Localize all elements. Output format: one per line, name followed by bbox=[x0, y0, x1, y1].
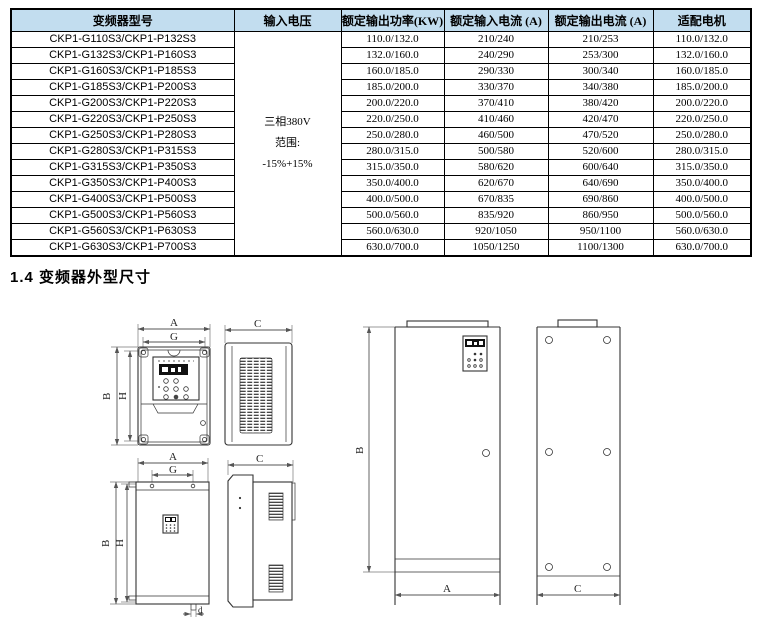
motor-cell: 560.0/630.0 bbox=[653, 224, 751, 240]
header-input-current: 额定输入电流 (A) bbox=[444, 9, 548, 32]
small-inverter-front-view: A G B H bbox=[101, 317, 210, 445]
table-row: CKP1-G400S3/CKP1-P500S3400.0/500.0670/83… bbox=[11, 192, 751, 208]
motor-cell: 630.0/700.0 bbox=[653, 240, 751, 257]
output-current-cell: 520/600 bbox=[548, 144, 653, 160]
dim-label-B: B bbox=[100, 540, 112, 547]
motor-cell: 185.0/200.0 bbox=[653, 80, 751, 96]
output-power-cell: 200.0/220.0 bbox=[341, 96, 444, 112]
model-cell: CKP1-G132S3/CKP1-P160S3 bbox=[11, 48, 234, 64]
dim-label-B: B bbox=[354, 447, 366, 454]
dim-label-C: C bbox=[574, 583, 581, 595]
model-cell: CKP1-G350S3/CKP1-P400S3 bbox=[11, 176, 234, 192]
dim-label-G: G bbox=[169, 464, 177, 476]
input-voltage-cell: 三相380V范围:-15%+15% bbox=[234, 32, 341, 257]
input-current-cell: 240/290 bbox=[444, 48, 548, 64]
model-cell: CKP1-G280S3/CKP1-P315S3 bbox=[11, 144, 234, 160]
motor-cell: 315.0/350.0 bbox=[653, 160, 751, 176]
model-cell: CKP1-G315S3/CKP1-P350S3 bbox=[11, 160, 234, 176]
table-row: CKP1-G132S3/CKP1-P160S3132.0/160.0240/29… bbox=[11, 48, 751, 64]
output-current-cell: 253/300 bbox=[548, 48, 653, 64]
model-cell: CKP1-G250S3/CKP1-P280S3 bbox=[11, 128, 234, 144]
input-current-cell: 370/410 bbox=[444, 96, 548, 112]
motor-cell: 220.0/250.0 bbox=[653, 112, 751, 128]
header-model: 变频器型号 bbox=[11, 9, 234, 32]
model-cell: CKP1-G110S3/CKP1-P132S3 bbox=[11, 32, 234, 48]
dim-label-d: d bbox=[198, 605, 203, 615]
dim-label-H: H bbox=[114, 539, 126, 547]
model-cell: CKP1-G400S3/CKP1-P500S3 bbox=[11, 192, 234, 208]
input-current-cell: 580/620 bbox=[444, 160, 548, 176]
table-row: CKP1-G280S3/CKP1-P315S3280.0/315.0500/58… bbox=[11, 144, 751, 160]
motor-cell: 132.0/160.0 bbox=[653, 48, 751, 64]
voltage-line3: -15%+15% bbox=[235, 154, 341, 175]
dim-label-A: A bbox=[169, 451, 177, 463]
header-output-current: 额定输出电流 (A) bbox=[548, 9, 653, 32]
output-current-cell: 380/420 bbox=[548, 96, 653, 112]
dim-label-G: G bbox=[170, 331, 178, 343]
input-current-cell: 460/500 bbox=[444, 128, 548, 144]
table-row: CKP1-G200S3/CKP1-P220S3200.0/220.0370/41… bbox=[11, 96, 751, 112]
input-current-cell: 1050/1250 bbox=[444, 240, 548, 257]
dim-label-A: A bbox=[443, 583, 451, 595]
table-row: CKP1-G110S3/CKP1-P132S3三相380V范围:-15%+15%… bbox=[11, 32, 751, 48]
motor-cell: 400.0/500.0 bbox=[653, 192, 751, 208]
output-current-cell: 340/380 bbox=[548, 80, 653, 96]
dimension-drawings: A G B H bbox=[0, 294, 760, 624]
table-row: CKP1-G560S3/CKP1-P630S3560.0/630.0920/10… bbox=[11, 224, 751, 240]
output-power-cell: 400.0/500.0 bbox=[341, 192, 444, 208]
output-power-cell: 185.0/200.0 bbox=[341, 80, 444, 96]
output-power-cell: 350.0/400.0 bbox=[341, 176, 444, 192]
model-cell: CKP1-G630S3/CKP1-P700S3 bbox=[11, 240, 234, 257]
table-row: CKP1-G185S3/CKP1-P200S3185.0/200.0330/37… bbox=[11, 80, 751, 96]
motor-cell: 160.0/185.0 bbox=[653, 64, 751, 80]
header-output-power: 额定输出功率(KW) bbox=[341, 9, 444, 32]
header-motor: 适配电机 bbox=[653, 9, 751, 32]
cabinet-side-view: C bbox=[537, 320, 620, 605]
dim-label-H: H bbox=[117, 392, 129, 400]
output-power-cell: 250.0/280.0 bbox=[341, 128, 444, 144]
motor-cell: 200.0/220.0 bbox=[653, 96, 751, 112]
door-lock bbox=[483, 450, 490, 457]
header-input-voltage: 输入电压 bbox=[234, 9, 341, 32]
motor-cell: 280.0/315.0 bbox=[653, 144, 751, 160]
output-current-cell: 600/640 bbox=[548, 160, 653, 176]
inverter-spec-table: 变频器型号 输入电压 额定输出功率(KW) 额定输入电流 (A) 额定输出电流 … bbox=[10, 8, 752, 257]
dim-label-C: C bbox=[254, 318, 261, 330]
motor-cell: 250.0/280.0 bbox=[653, 128, 751, 144]
output-current-cell: 420/470 bbox=[548, 112, 653, 128]
model-cell: CKP1-G160S3/CKP1-P185S3 bbox=[11, 64, 234, 80]
table-row: CKP1-G160S3/CKP1-P185S3160.0/185.0290/33… bbox=[11, 64, 751, 80]
model-cell: CKP1-G185S3/CKP1-P200S3 bbox=[11, 80, 234, 96]
lifting-lug bbox=[558, 320, 597, 327]
output-power-cell: 110.0/132.0 bbox=[341, 32, 444, 48]
cabinet-front-view: B A bbox=[354, 321, 500, 605]
keypad bbox=[163, 515, 178, 533]
section-title: 1.4 变频器外型尺寸 bbox=[10, 266, 151, 287]
voltage-line2: 范围: bbox=[235, 133, 341, 154]
output-current-cell: 690/860 bbox=[548, 192, 653, 208]
output-power-cell: 220.0/250.0 bbox=[341, 112, 444, 128]
keypad bbox=[463, 336, 487, 371]
output-current-cell: 470/520 bbox=[548, 128, 653, 144]
output-power-cell: 560.0/630.0 bbox=[341, 224, 444, 240]
motor-cell: 500.0/560.0 bbox=[653, 208, 751, 224]
output-current-cell: 950/1100 bbox=[548, 224, 653, 240]
output-power-cell: 280.0/315.0 bbox=[341, 144, 444, 160]
table-row: CKP1-G350S3/CKP1-P400S3350.0/400.0620/67… bbox=[11, 176, 751, 192]
model-cell: CKP1-G220S3/CKP1-P250S3 bbox=[11, 112, 234, 128]
input-current-cell: 620/670 bbox=[444, 176, 548, 192]
table-row: CKP1-G220S3/CKP1-P250S3220.0/250.0410/46… bbox=[11, 112, 751, 128]
output-current-cell: 300/340 bbox=[548, 64, 653, 80]
table-row: CKP1-G315S3/CKP1-P350S3315.0/350.0580/62… bbox=[11, 160, 751, 176]
input-current-cell: 290/330 bbox=[444, 64, 548, 80]
input-current-cell: 835/920 bbox=[444, 208, 548, 224]
table-body: CKP1-G110S3/CKP1-P132S3三相380V范围:-15%+15%… bbox=[11, 32, 751, 257]
mounting-plate bbox=[228, 475, 253, 607]
dim-label-A: A bbox=[170, 317, 178, 329]
large-inverter-side-view: C bbox=[228, 453, 295, 607]
vent-grille bbox=[240, 358, 272, 433]
dim-label-C: C bbox=[256, 453, 263, 465]
input-current-cell: 410/460 bbox=[444, 112, 548, 128]
table-row: CKP1-G250S3/CKP1-P280S3250.0/280.0460/50… bbox=[11, 128, 751, 144]
large-inverter-front-view: A G B H d bbox=[100, 451, 209, 617]
output-power-cell: 132.0/160.0 bbox=[341, 48, 444, 64]
table-row: CKP1-G500S3/CKP1-P560S3500.0/560.0835/92… bbox=[11, 208, 751, 224]
lifting-lug bbox=[407, 321, 488, 327]
output-current-cell: 640/690 bbox=[548, 176, 653, 192]
model-cell: CKP1-G500S3/CKP1-P560S3 bbox=[11, 208, 234, 224]
table-header-row: 变频器型号 输入电压 额定输出功率(KW) 额定输入电流 (A) 额定输出电流 … bbox=[11, 9, 751, 32]
input-current-cell: 210/240 bbox=[444, 32, 548, 48]
model-cell: CKP1-G200S3/CKP1-P220S3 bbox=[11, 96, 234, 112]
output-power-cell: 500.0/560.0 bbox=[341, 208, 444, 224]
output-power-cell: 315.0/350.0 bbox=[341, 160, 444, 176]
dim-label-B: B bbox=[101, 393, 113, 400]
voltage-line1: 三相380V bbox=[235, 112, 341, 133]
input-current-cell: 670/835 bbox=[444, 192, 548, 208]
output-current-cell: 1100/1300 bbox=[548, 240, 653, 257]
output-power-cell: 630.0/700.0 bbox=[341, 240, 444, 257]
output-power-cell: 160.0/185.0 bbox=[341, 64, 444, 80]
motor-cell: 110.0/132.0 bbox=[653, 32, 751, 48]
output-current-cell: 210/253 bbox=[548, 32, 653, 48]
input-current-cell: 500/580 bbox=[444, 144, 548, 160]
small-inverter-side-view: C bbox=[225, 318, 292, 445]
keypad bbox=[153, 357, 199, 400]
input-current-cell: 920/1050 bbox=[444, 224, 548, 240]
table-row: CKP1-G630S3/CKP1-P700S3630.0/700.01050/1… bbox=[11, 240, 751, 257]
model-cell: CKP1-G560S3/CKP1-P630S3 bbox=[11, 224, 234, 240]
output-current-cell: 860/950 bbox=[548, 208, 653, 224]
motor-cell: 350.0/400.0 bbox=[653, 176, 751, 192]
input-current-cell: 330/370 bbox=[444, 80, 548, 96]
